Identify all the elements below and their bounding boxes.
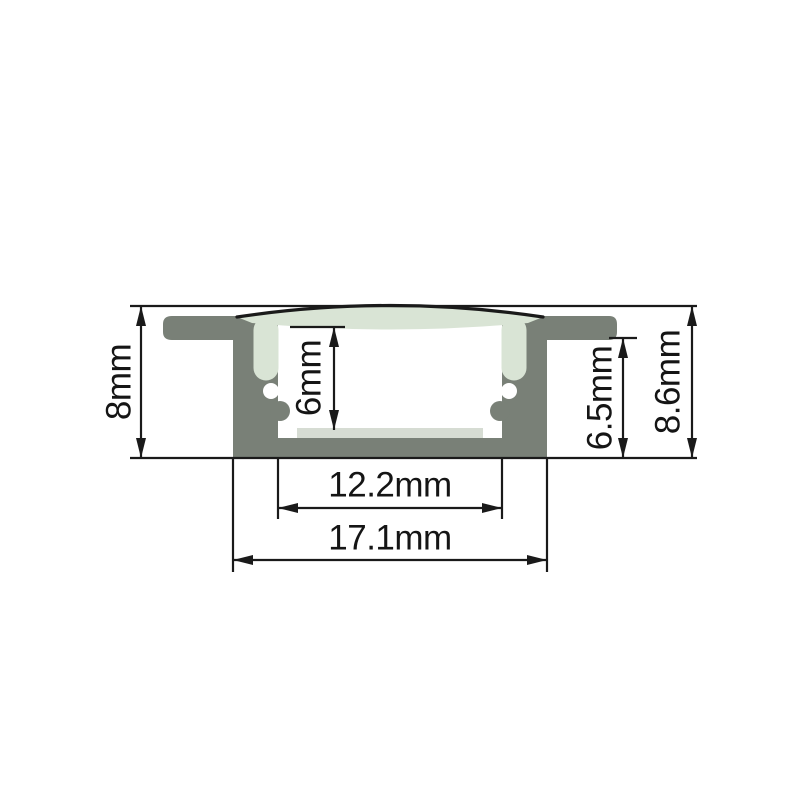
arrowhead-up-icon [687,306,697,326]
dim-label-left-height: 8mm [100,344,139,420]
led-strip [297,428,483,438]
dim-label-outer-width: 17.1mm [328,519,451,558]
wall-notch-left [263,383,279,399]
dim-label-inner-width: 12.2mm [328,466,451,505]
wall-nub-right [490,401,510,421]
arrowhead-left-icon [233,555,253,565]
dim-label-overall-height: 8.6mm [649,330,688,434]
arrowhead-up-icon [618,338,628,358]
wall-notch-right [501,383,517,399]
drawing-canvas: 8mm 6mm 6.5mm 8.6mm 12.2mm 17.1mm [0,0,800,800]
dim-label-right-inner-height: 6.5mm [581,346,620,450]
arrowhead-right-icon [482,503,502,513]
dim-label-cavity-height: 6mm [290,340,329,416]
arrowhead-left-icon [278,503,298,513]
arrowhead-down-icon [687,438,697,458]
arrowhead-right-icon [527,555,547,565]
arrowhead-up-icon [136,306,146,326]
wall-nub-left [270,401,290,421]
arrowhead-down-icon [136,438,146,458]
technical-drawing-page: 8mm 6mm 6.5mm 8.6mm 12.2mm 17.1mm [0,0,800,800]
arrowhead-down-icon [618,438,628,458]
